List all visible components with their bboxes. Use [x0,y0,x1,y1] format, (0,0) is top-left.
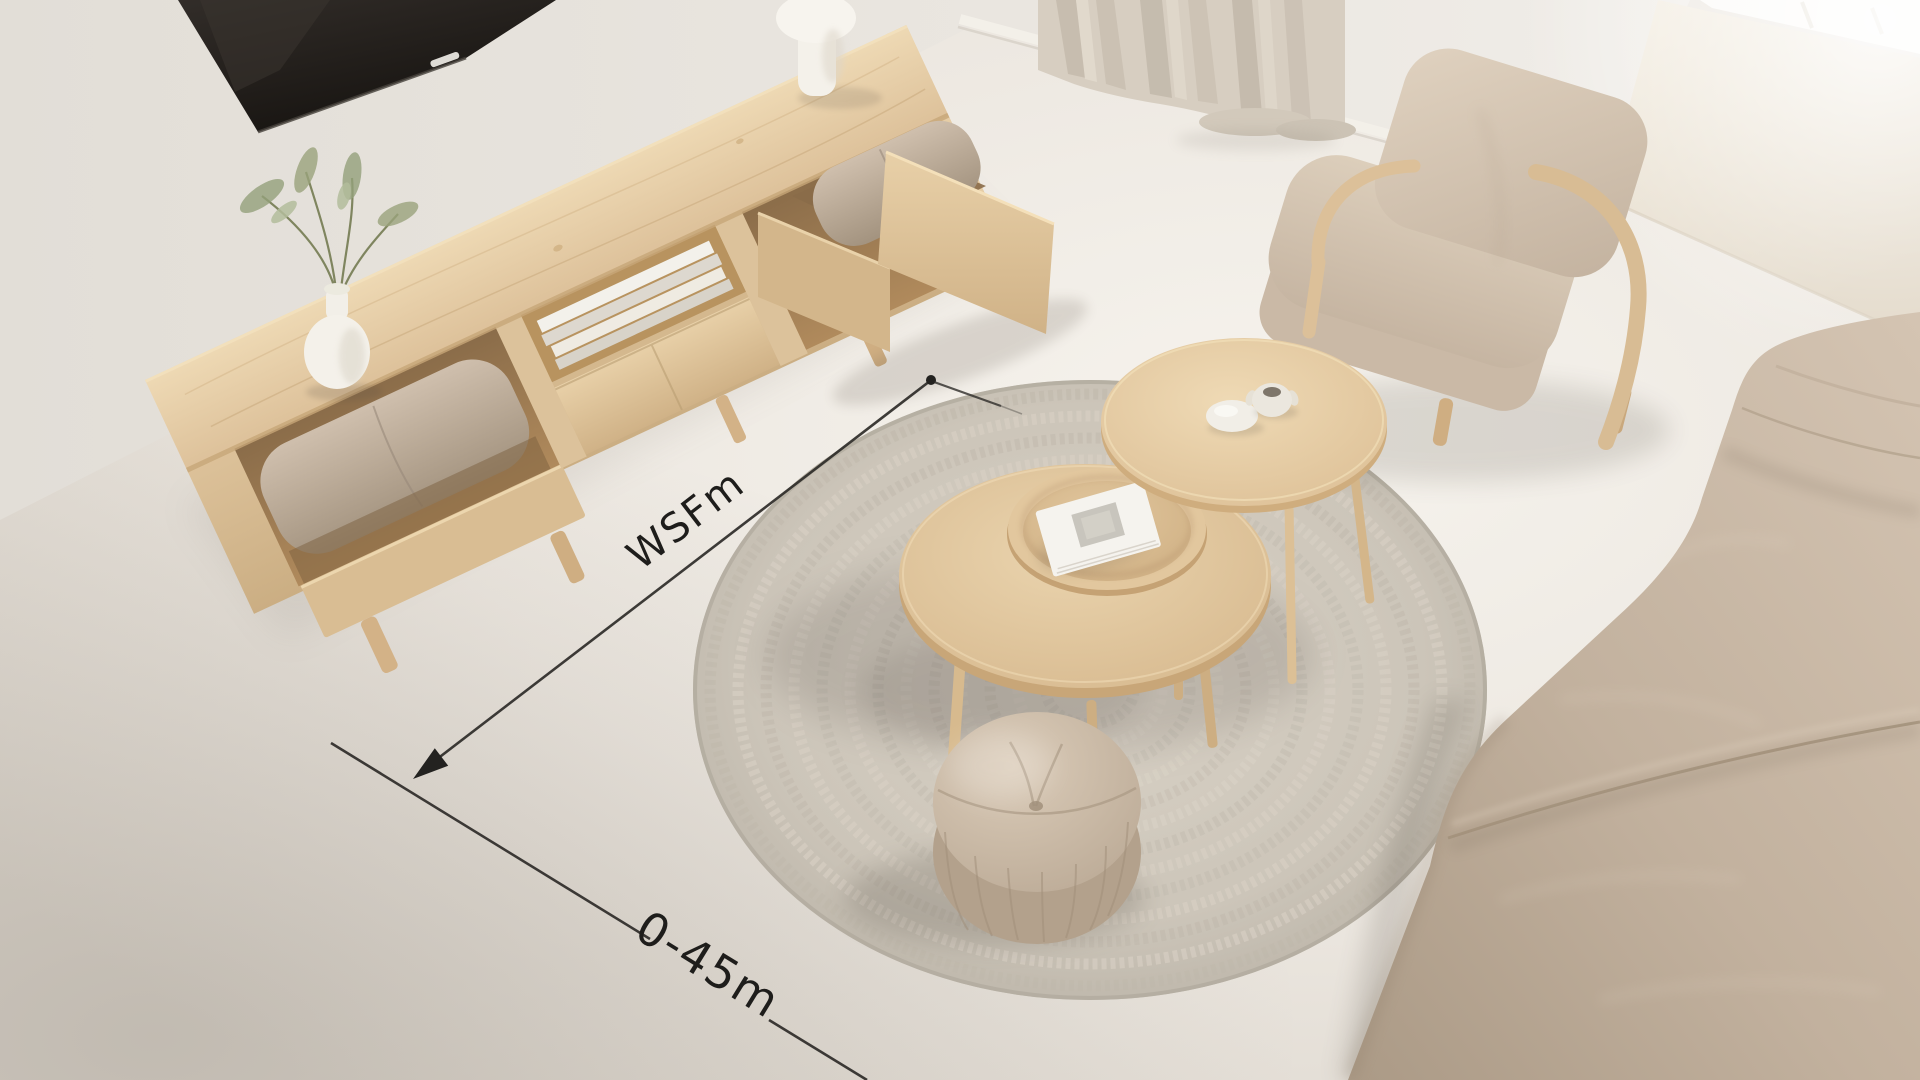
scene-canvas: WSFm 0-45m [0,0,1920,1080]
pouf-dimple [1029,801,1043,811]
lamp-shading [822,29,844,83]
vase-shading [339,328,365,384]
curtain-floor-shadow [1176,129,1336,151]
dimension-vertex-dot [926,375,936,385]
vase-lip [324,283,350,295]
living-room-scene: WSFm 0-45m [0,0,1920,1080]
mini-jar-mouth [1263,387,1281,397]
pouf-highlight [948,732,1052,800]
pebble-dish-shine [1214,405,1238,417]
